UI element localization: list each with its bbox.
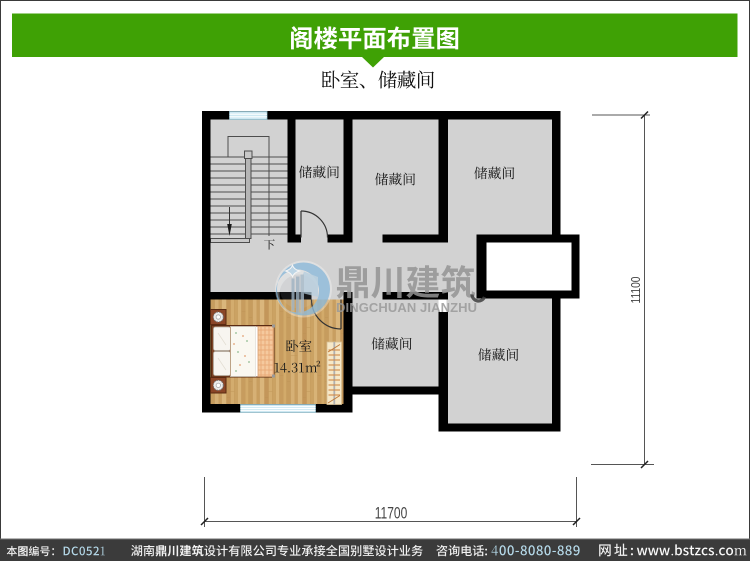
svg-text:11100: 11100 [629, 276, 643, 303]
svg-text:DINGCHUAN JIANZHU: DINGCHUAN JIANZHU [336, 300, 477, 315]
svg-text:11700: 11700 [375, 505, 408, 523]
